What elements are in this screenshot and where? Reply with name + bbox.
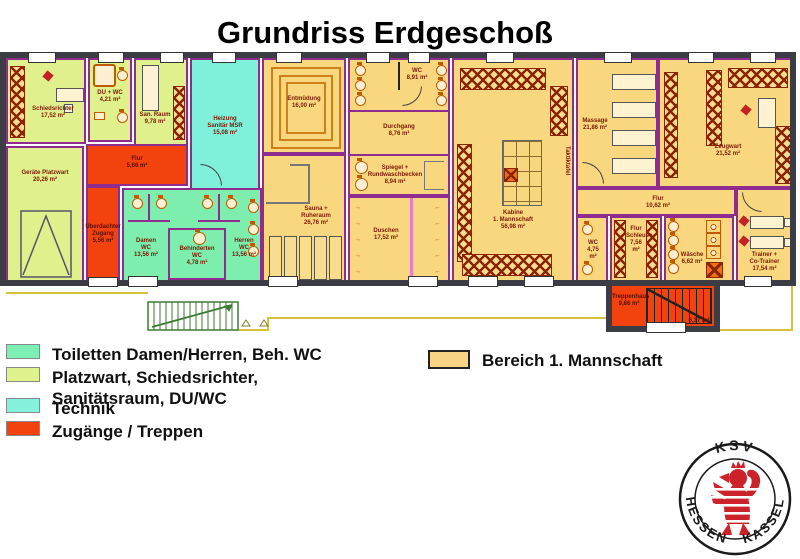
room-label: Trainer + Co-Trainer 17,54 m² [738, 252, 791, 273]
window [276, 52, 302, 63]
room-kabine: Taktiktafel Kabine 1. Mannschaft 56,98 m… [452, 58, 574, 282]
window [688, 52, 714, 63]
room-label: Schiedsrichter 17,52 m² [24, 106, 82, 120]
legend-item-zugaenge: Zugänge / Treppen [6, 421, 203, 442]
room-beh-wc: Behinderten WC 4,78 m² [168, 228, 226, 280]
taktiktafel-label: Taktiktafel [564, 146, 570, 175]
shower-head [668, 249, 679, 260]
legend-swatch [6, 398, 40, 413]
stall-wall [218, 194, 220, 222]
room-heizung: Heizung Sanitär MSR 15,08 m² [190, 58, 260, 190]
chair [42, 70, 53, 81]
urinal [248, 202, 259, 213]
room-label: Geräte Platzwart 20,26 m² [8, 170, 82, 184]
door-arc [200, 164, 222, 186]
room-label: Zeugwart 21,52 m² [702, 144, 754, 158]
room-label: Heizung Sanitär MSR 15,08 m² [192, 116, 258, 137]
room-label: Wäsche 6,62 m² [678, 252, 706, 266]
ksv-hessen-kassel-logo: KSV HESSEN KASSEL [676, 440, 794, 558]
shower-head [668, 221, 679, 232]
window [28, 52, 56, 63]
lockers [614, 220, 626, 278]
room-label: Duschen 17,52 m² [364, 228, 408, 242]
room-geraete-platzwart: Geräte Platzwart 20,26 m² [6, 146, 84, 282]
room-spiegel: Spiegel + Rundwaschbecken 8,94 m² [348, 154, 450, 196]
room-zugang: Überdachter Zugang 5,56 m² [86, 186, 120, 282]
room-schiedsrichter: Schiedsrichter 17,52 m² [6, 58, 86, 144]
toilet [156, 198, 167, 209]
stairwell-door [646, 322, 686, 333]
room-flur-links: Flur 5,66 m² [86, 144, 188, 186]
shower-head: ← [434, 252, 441, 259]
lounger [329, 236, 342, 280]
niche-wall [424, 189, 444, 190]
lockers [706, 70, 722, 146]
room-duschen: → → → → → ← ← ← ← ← Duschen 17,52 m² [348, 196, 450, 282]
toilet [193, 232, 206, 245]
exterior-stairs [148, 302, 238, 330]
window [408, 52, 430, 63]
washing-machine [706, 246, 721, 259]
sink [94, 112, 105, 120]
pool-inner [286, 82, 326, 134]
lounger [314, 236, 327, 280]
window [486, 52, 514, 63]
stove [504, 168, 518, 182]
room-label: Flur 10,62 m² [618, 196, 698, 210]
room-massage: Massage 21,86 m² [576, 58, 658, 188]
lockers [457, 144, 472, 262]
lockers [462, 254, 552, 276]
room-entmuedung: Entmüdung 16,00 m² [262, 58, 346, 154]
window [366, 52, 390, 63]
shower-head: → [354, 236, 361, 243]
desk [750, 216, 784, 229]
window [750, 52, 776, 63]
sauna-wall [290, 164, 310, 166]
room-label: Durchgang 8,76 m² [350, 124, 448, 138]
room-flur-schleuse: Flur Schleuse 7,56 m² [610, 216, 662, 282]
massage-table [612, 130, 656, 146]
gate-symbol [20, 210, 72, 278]
room-waesche: Wäsche 6,62 m² [664, 216, 734, 282]
cabinet [173, 86, 185, 140]
niche-wall [424, 161, 444, 162]
desk [758, 98, 776, 128]
legend-swatch [6, 367, 40, 382]
urinal [248, 224, 259, 235]
massage-table [612, 74, 656, 90]
desk [750, 236, 784, 249]
door-arc [582, 162, 604, 184]
toilet [582, 224, 593, 235]
lounger [299, 236, 312, 280]
shower-head [668, 263, 679, 274]
lockers [775, 126, 791, 184]
toilet [355, 65, 366, 76]
room-trainer: Trainer + Co-Trainer 17,54 m² [736, 188, 793, 282]
chair [738, 215, 749, 226]
window [468, 276, 498, 287]
window [128, 276, 158, 287]
shower-head: ← [434, 204, 441, 211]
toilet [436, 65, 447, 76]
shower-head: → [354, 252, 361, 259]
sauna-wall [308, 164, 310, 204]
room-label: Behinderten WC 4,78 m² [170, 246, 224, 267]
stall-wall [398, 62, 400, 90]
legend-item-toiletten: Toiletten Damen/Herren, Beh. WC [6, 344, 322, 365]
room-label: Spiegel + Rundwaschbecken 8,94 m² [364, 165, 426, 186]
window [98, 52, 124, 63]
stall-wall [148, 194, 150, 222]
room-zeugwart: Zeugwart 21,52 m² [658, 58, 793, 188]
room-label: WC 8,91 m² [402, 68, 432, 82]
window [524, 276, 554, 287]
window [160, 52, 184, 63]
room-sauna: Sauna + Ruheraum 26,76 m² [262, 154, 346, 282]
shower [93, 64, 116, 87]
lockers [646, 220, 658, 278]
room-label: Sauna + Ruheraum 26,76 m² [288, 206, 344, 227]
window [268, 276, 298, 287]
shower-head: → [354, 268, 361, 275]
room-label: WC 4,75 m² [584, 240, 602, 261]
legend-swatch [6, 344, 40, 359]
legend-label: Zugänge / Treppen [52, 421, 203, 442]
lockers [728, 68, 788, 88]
room-label: Flur Schleuse 7,56 m² [626, 226, 646, 254]
toilet [355, 95, 366, 106]
legend-label: Technik [52, 398, 115, 419]
window [604, 52, 632, 63]
room-label: San. Raum 9,78 m² [136, 112, 174, 126]
chair [740, 104, 751, 115]
lockers [460, 68, 546, 90]
washing-machine [706, 233, 721, 246]
toilet [132, 198, 143, 209]
chair [784, 218, 793, 227]
divider [410, 198, 413, 280]
laundry-chute [706, 262, 723, 278]
window [744, 276, 772, 287]
chair [784, 238, 793, 247]
urinal [248, 246, 259, 257]
shower-head: ← [434, 220, 441, 227]
toilet [226, 198, 237, 209]
floor-plan: Schiedsrichter 17,52 m² DU + WC 4,21 m² … [0, 0, 800, 340]
legend-label: Bereich 1. Mannschaft [482, 350, 662, 371]
legend-swatch [428, 350, 470, 369]
sauna-wall [266, 202, 310, 204]
washing-machine [706, 220, 721, 233]
room-label: Damen WC 13,56 m² [124, 238, 168, 259]
shower-head: ← [434, 268, 441, 275]
chair [738, 235, 749, 246]
room-flur-rechts: Flur 10,62 m² [576, 188, 736, 216]
room-durchgang: Durchgang 8,76 m² [348, 112, 450, 154]
legend-label: Toiletten Damen/Herren, Beh. WC [52, 344, 322, 365]
room-toiletten: Damen WC 13,56 m² Behinderten WC 4,78 m²… [122, 188, 262, 282]
waschbrunnen [355, 178, 368, 191]
legend-swatch [6, 421, 40, 436]
toilet [582, 264, 593, 275]
toilet [436, 95, 447, 106]
room-du-wc: DU + WC 4,21 m² [88, 58, 132, 142]
shower-head [668, 235, 679, 246]
toilet [202, 198, 213, 209]
toilet [117, 70, 128, 81]
chair [64, 104, 73, 113]
room-label: Flur 5,66 m² [88, 156, 186, 170]
entrance-door [88, 277, 118, 287]
shower-head: → [354, 204, 361, 211]
shower-head: ← [434, 236, 441, 243]
massage-table [612, 102, 656, 118]
window [408, 276, 438, 287]
shower-head: → [354, 220, 361, 227]
room-label: Überdachter Zugang 5,56 m² [84, 224, 122, 245]
lounger [269, 236, 282, 280]
lockers [550, 86, 568, 136]
niche-wall [424, 161, 425, 189]
lockers [664, 72, 678, 178]
cabinet [10, 66, 25, 138]
desk [56, 88, 84, 102]
bed [142, 65, 159, 111]
toilet [117, 112, 128, 123]
legend-item-technik: Technik [6, 398, 115, 419]
massage-table [612, 158, 656, 174]
toilet [436, 80, 447, 91]
room-label: Massage 21,86 m² [578, 118, 612, 132]
window [212, 52, 236, 63]
room-wc-mannschaft: WC 8,91 m² [348, 58, 450, 112]
room-wc-rechts: WC 4,75 m² [576, 216, 608, 282]
legend-bereich-mannschaft: Bereich 1. Mannschaft [428, 350, 662, 371]
toilet [355, 80, 366, 91]
door-arc [402, 86, 422, 106]
waschbrunnen [355, 161, 368, 174]
room-san-raum: San. Raum 9,78 m² [134, 58, 188, 146]
lounger [284, 236, 297, 280]
room-label: DU + WC 4,21 m² [90, 90, 130, 104]
door-arc [742, 192, 762, 212]
